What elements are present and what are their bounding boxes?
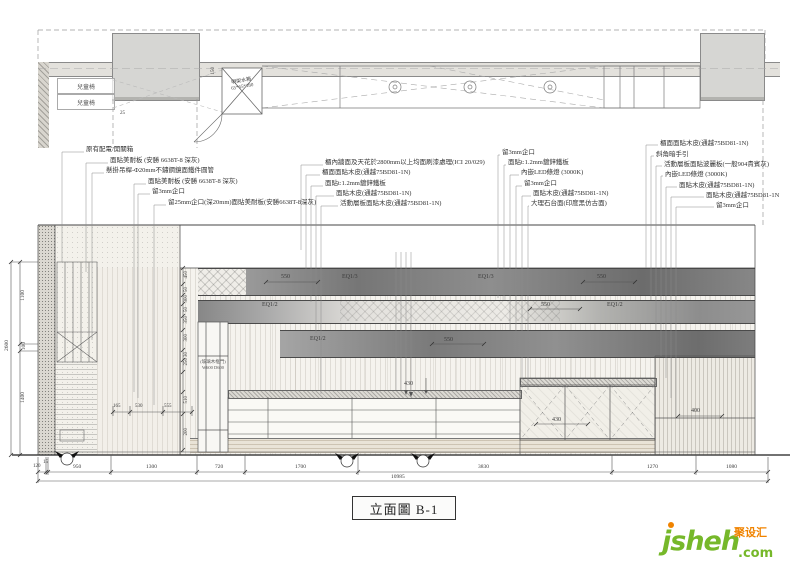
annotation: 面貼t:1.2mm鍍鋅鐵板 <box>325 180 386 187</box>
mini-chain-dim: 555 <box>164 404 172 410</box>
bottom-dim-overall: 10985 <box>391 474 405 480</box>
left-chain-dim: 300 <box>184 295 190 303</box>
annotation: 活動層板面貼木皮(通越75BD81-1N) <box>340 200 441 207</box>
dim-430-top: 430 <box>404 381 413 388</box>
glass-door-cabinet <box>198 322 228 452</box>
left-chain-dim: 300 <box>184 334 190 342</box>
bottom-dim: 950 <box>73 464 81 470</box>
annotation: 留25mm企口(深20mm)面貼美耐板(安勝6638T-8深灰) <box>168 199 316 206</box>
left-chain-dim: 510 <box>184 396 190 404</box>
annotation: 櫃內牆面及天花於2800mm以上均面刷漆處理(ICI 20/029) <box>325 159 485 166</box>
trellis-feature <box>57 262 97 441</box>
bottom-dim: 1700 <box>295 464 306 470</box>
drawing-title: 立面圖 B-1 <box>352 496 456 520</box>
annotation: 面貼美耐板 (安勝 6638T-8 深灰) <box>110 157 200 164</box>
logo-dot-icon <box>668 522 674 528</box>
annotation: 面貼木皮(通越75BD81-1N <box>706 192 779 199</box>
bottom-dim: 1270 <box>647 464 658 470</box>
dimension-lines <box>11 262 768 483</box>
cabinet-label: (玻璃木框門) W600 D600 <box>198 359 228 371</box>
plan-dim-25: 25 <box>120 111 125 117</box>
annotation: 櫃面面貼木皮(通越75BD81-1N) <box>322 169 410 176</box>
far-left-dim-1100: 1100 <box>20 290 26 301</box>
annotation: 留3mm企口 <box>152 188 185 195</box>
left-chain-dim: 50 <box>184 287 190 292</box>
logo-com-text: .com <box>738 546 773 561</box>
drawing-title-text: 立面圖 B-1 <box>370 499 439 518</box>
logo-wordmark: jsheh <box>662 526 739 557</box>
annotation: 懸掛吊桿-Φ20mm不鏽鋼鏡面鐵件圓管 <box>106 167 214 174</box>
annotation: 留3mm企口 <box>502 149 535 156</box>
left-chain-dim: 250 <box>184 358 190 366</box>
bottom-dim: 3830 <box>478 464 489 470</box>
far-left-dim-overall: 2600 <box>4 340 10 351</box>
band-a-dim-550-right: 550 <box>597 274 606 281</box>
dim-430-doors: 430 <box>552 417 561 424</box>
band-c-eq: EQ1/2 <box>310 336 326 343</box>
annotation: 面貼木皮(通越75BD81-1N) <box>533 190 608 197</box>
annotation: 大理石台面(印度黑仿古面) <box>531 200 607 207</box>
annotation: 斜角暗手引 <box>656 151 689 158</box>
bottom-dim: 1080 <box>726 464 737 470</box>
jsheh-logo[interactable]: jsheh 聚设汇 .com <box>642 518 788 564</box>
band-b-eq-right: EQ1/2 <box>607 302 623 309</box>
bottom-dim: 1300 <box>146 464 157 470</box>
annotation: 面貼木皮(通越75BD81-1N) <box>336 190 411 197</box>
logo-cn-text: 聚设汇 <box>734 524 767 540</box>
annotation: 內嵌LED條燈 (3000K) <box>665 171 727 178</box>
band-a-dim-550-left: 550 <box>281 274 290 281</box>
band-c-dim-550: 550 <box>444 337 453 344</box>
annotation: 櫃面面貼木皮(通越75BD81-1N) <box>660 140 748 147</box>
mini-chain-dim: 530 <box>135 404 143 410</box>
annotation: 原有配電/開關箱 <box>86 146 133 153</box>
cabinet-label-line1: (玻璃木框門) <box>200 359 226 364</box>
band-a-eq-1: EQ1/3 <box>342 274 358 281</box>
bottom-dim: 720 <box>215 464 223 470</box>
dim-400: 400 <box>691 408 700 415</box>
leader-lines <box>62 145 714 418</box>
elevation-drawing-sheet: 兒童椅 兒童椅 <box>0 0 790 566</box>
left-chain-dim: 450 <box>184 271 190 279</box>
cabinet-label-line2: W600 D600 <box>202 365 224 370</box>
annotation: 面貼美耐板 (安勝 6638T-8 深灰) <box>148 178 238 185</box>
left-chain-dim: 350 <box>184 316 190 324</box>
annotation: 留3mm企口 <box>524 180 557 187</box>
left-chain-dim: 200 <box>184 428 190 436</box>
mini-chain-dim: 165 <box>113 404 121 410</box>
annotation: 內嵌LED條燈 (3000K) <box>521 169 583 176</box>
far-left-dim-1400: 1400 <box>20 392 26 403</box>
linework-svg <box>0 0 790 566</box>
plan-dim-150: 150 <box>211 67 217 75</box>
annotation: 活動層板面貼波麗板(一般904貴賓灰) <box>664 161 769 168</box>
left-chain-dim: 30 <box>184 352 190 357</box>
band-b-dim-550: 550 <box>541 302 550 309</box>
band-b-eq-left: EQ1/2 <box>262 302 278 309</box>
bottom-dim: 15 <box>43 460 48 466</box>
far-left-dim-100: 100 <box>21 342 27 350</box>
bottom-dim: 120 <box>33 464 41 470</box>
annotation: 留3mm企口 <box>716 202 749 209</box>
annotation: 面貼木皮(通越75BD81-1N) <box>679 182 754 189</box>
annotation: 面貼t:1.2mm鍍鋅鐵板 <box>508 159 569 166</box>
band-a-eq-2: EQ1/3 <box>478 274 494 281</box>
left-chain-dim: 50 <box>184 307 190 312</box>
